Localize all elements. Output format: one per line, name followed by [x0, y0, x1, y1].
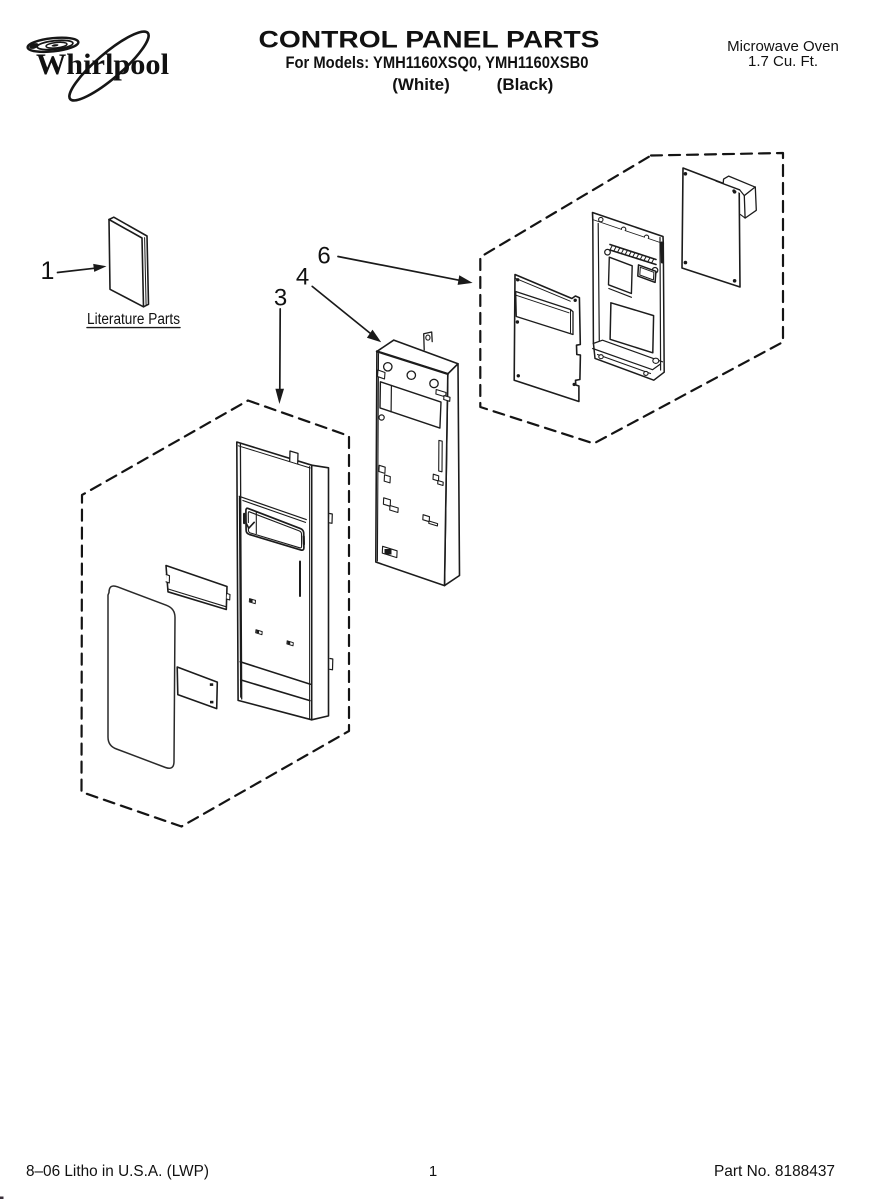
svg-text:1: 1: [429, 1163, 437, 1180]
svg-text:(White): (White): [392, 75, 450, 94]
svg-text:1: 1: [41, 257, 55, 285]
svg-text:1.7 Cu. Ft.: 1.7 Cu. Ft.: [748, 53, 818, 70]
svg-text:3: 3: [274, 284, 287, 311]
svg-text:Whirlpool: Whirlpool: [36, 48, 169, 81]
svg-text:(Black): (Black): [497, 75, 554, 94]
svg-text:8–06 Litho in U.S.A. (LWP): 8–06 Litho in U.S.A. (LWP): [26, 1163, 209, 1180]
svg-text:For Models: YMH1160XSQ0, YMH11: For Models: YMH1160XSQ0, YMH1160XSB0: [286, 53, 589, 72]
svg-text:4: 4: [296, 264, 309, 291]
svg-text:Part No. 8188437: Part No. 8188437: [714, 1163, 835, 1180]
svg-text:6: 6: [317, 242, 330, 269]
svg-text:CONTROL PANEL PARTS: CONTROL PANEL PARTS: [259, 27, 600, 54]
svg-text:Literature Parts: Literature Parts: [87, 311, 180, 328]
